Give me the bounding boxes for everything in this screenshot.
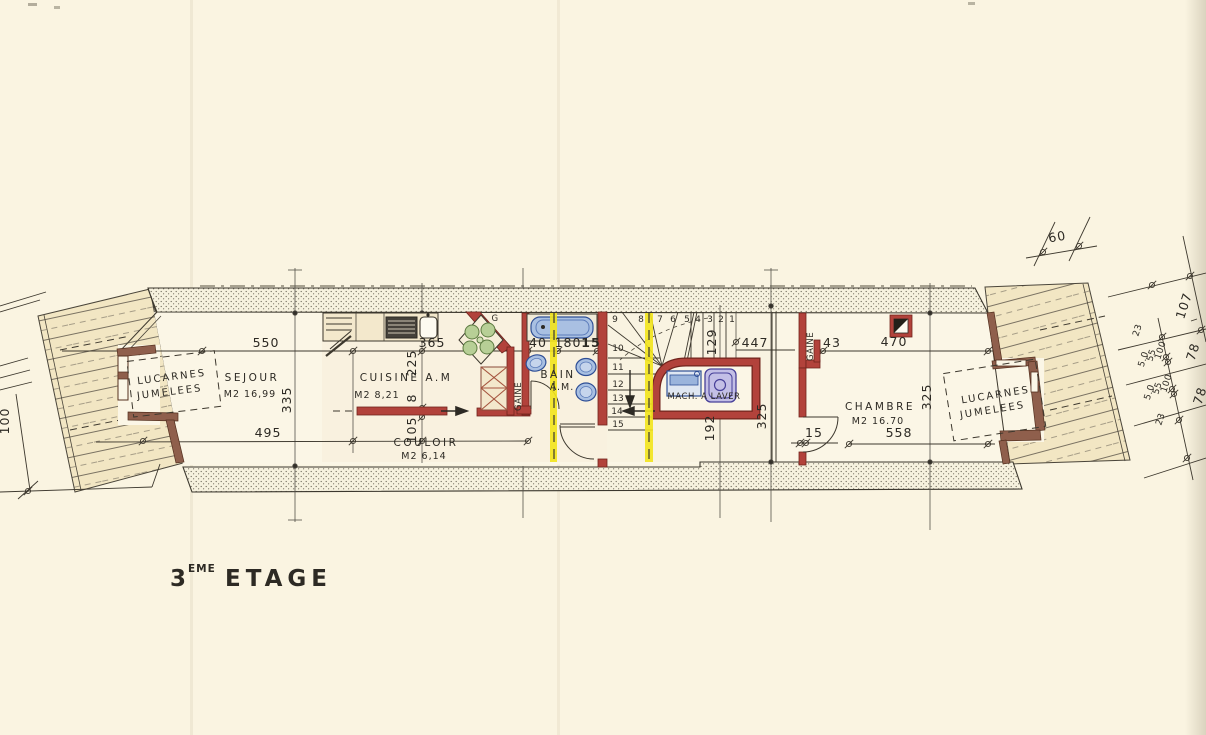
stair-number: 10: [612, 344, 624, 354]
room-area-sejour: M2 16,99: [224, 389, 276, 400]
stair-number: 15: [612, 420, 623, 430]
stair-number: 13: [612, 394, 623, 404]
dim-100-left: 100: [0, 408, 12, 435]
dim-495: 495: [255, 425, 282, 440]
drain-icon: [541, 325, 545, 329]
dim-365: 365: [419, 335, 446, 350]
dim-325-mid: 325: [754, 403, 769, 430]
dim-15-door: 15: [805, 425, 823, 440]
room-sub-bain: A.M.: [550, 382, 575, 393]
faucet-icon: [426, 313, 429, 316]
floor-plan-canvas: 550 365 40 180 15 447 43 470 495 15 558 …: [0, 0, 1206, 735]
room-area-chambre: M2 16.70: [852, 416, 904, 427]
room-area-cuisine: M2 8,21: [354, 390, 399, 401]
kitchen-south-wall: [357, 407, 447, 415]
dim-180: 180: [555, 335, 582, 350]
chambre-wall-stub: [799, 452, 806, 465]
label-washing-machine: MACH. A LAVER: [668, 392, 741, 402]
bidet-inner: [580, 362, 592, 372]
stair-number: 1: [729, 315, 735, 325]
room-label-bain: BAIN: [540, 369, 575, 381]
dim-8: 8: [404, 394, 419, 403]
bath-stair-wall-stub: [598, 459, 607, 467]
dim-23-b: 23: [1154, 412, 1167, 427]
dim-43: 43: [823, 335, 841, 350]
stair-number: 3: [707, 315, 713, 325]
floor-plan-sheet: 550 365 40 180 15 447 43 470 495 15 558 …: [0, 0, 1206, 735]
duct-wall-left: [507, 347, 514, 415]
wc-inner: [580, 387, 592, 398]
stair-number: 2: [718, 315, 724, 325]
dim-447: 447: [742, 335, 769, 350]
label-gaine-left: GAINE: [514, 382, 524, 411]
washing-machine-drum: [670, 375, 698, 385]
stove-icon: [386, 317, 417, 338]
ink-speck: [54, 6, 60, 9]
room-label-cuisine: CUISINE A.M: [360, 372, 453, 384]
title-floor-word: ETAGE: [225, 566, 332, 592]
room-label-couloir: COULOIR: [394, 437, 459, 449]
dormer-window-sill: [1000, 430, 1041, 441]
stair-number: 6: [670, 315, 676, 325]
stair-number: 4: [695, 315, 701, 325]
dim-129: 129: [704, 329, 719, 356]
dim-192: 192: [702, 415, 717, 442]
dormer-window: [996, 360, 1026, 366]
dim-550: 550: [253, 335, 280, 350]
sheet-edge-shadow: [1185, 0, 1206, 735]
dim-325-right: 325: [919, 384, 934, 411]
title-block: 3 EME ETAGE: [170, 563, 332, 592]
bath-stair-wall: [598, 312, 607, 425]
label-gaine-right: GAINE: [806, 332, 816, 361]
dim-23-a: 23: [1131, 323, 1144, 338]
dormer-window-mullion: [118, 372, 128, 379]
dim-335: 335: [279, 387, 294, 414]
stair-number: 11: [612, 363, 623, 373]
stair-number: 9: [612, 315, 618, 325]
ink-speck: [968, 2, 975, 5]
stair-number: 8: [638, 315, 644, 325]
north-wall: [148, 288, 988, 313]
title-floor-suffix: EME: [188, 563, 216, 575]
stair-number: 7: [657, 315, 663, 325]
dim-15-bath: 15: [581, 335, 600, 350]
chambre-wall-mid: [799, 368, 806, 417]
dim-470: 470: [881, 334, 908, 349]
ink-speck: [28, 3, 37, 6]
dim-40: 40: [529, 335, 547, 350]
room-label-sejour: SEJOUR: [225, 372, 280, 384]
label-g: G: [491, 314, 498, 324]
dormer-window: [1031, 372, 1038, 392]
dim-60: 60: [1047, 228, 1067, 246]
dim-558: 558: [886, 425, 913, 440]
stair-number: 5: [684, 315, 690, 325]
room-label-chambre: CHAMBRE: [845, 401, 915, 413]
stair-number: 14: [611, 407, 623, 417]
stair-number: 12: [612, 380, 623, 390]
room-area-couloir: M2 6,14: [401, 451, 446, 462]
chambre-wall-upper: [799, 313, 806, 368]
